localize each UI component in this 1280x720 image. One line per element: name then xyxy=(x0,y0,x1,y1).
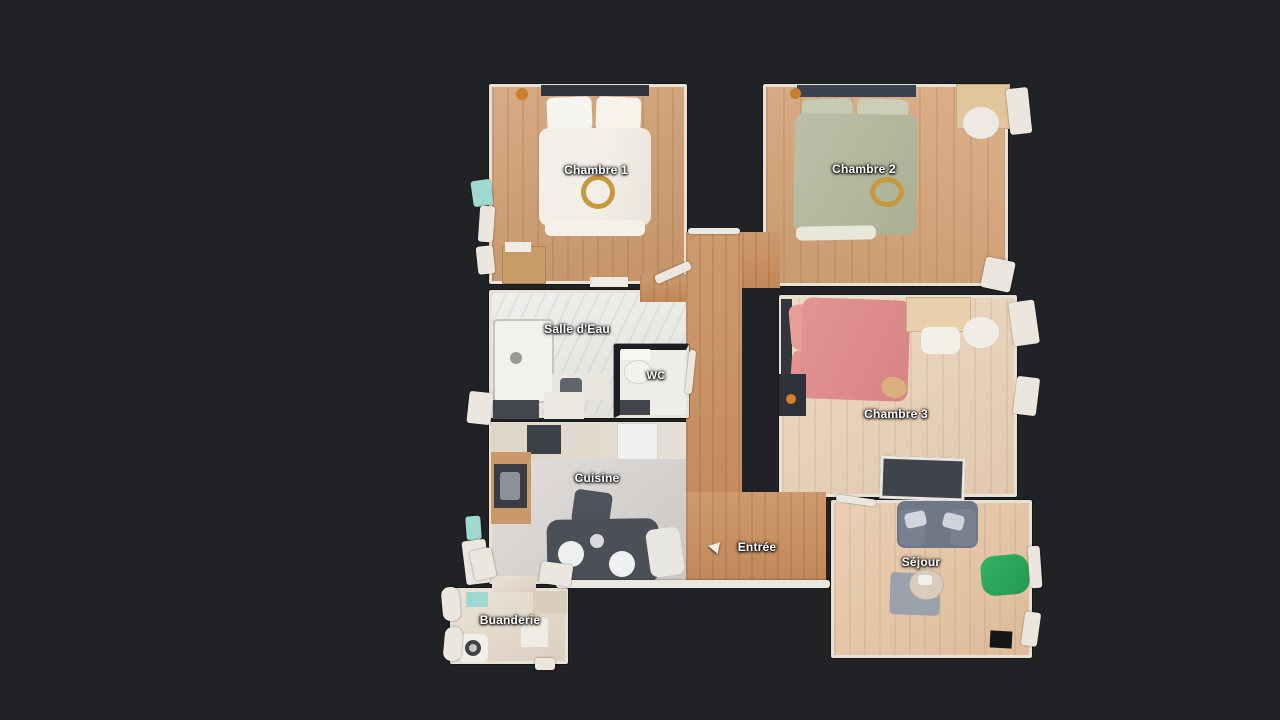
chambre3-bench xyxy=(879,456,965,502)
room-label-cuisine: Cuisine xyxy=(575,471,620,485)
kitchen-chair-white xyxy=(645,526,685,578)
room-entree-hall[interactable] xyxy=(686,492,826,586)
chambre3-candle xyxy=(786,394,796,404)
kitchen-bowl xyxy=(590,534,604,548)
wc-mat xyxy=(620,400,650,415)
bathroom-cabinet xyxy=(544,392,584,419)
wall-fragment xyxy=(478,206,495,243)
wall-fragment xyxy=(539,561,574,587)
bed1-foot-drape xyxy=(545,220,645,236)
wall-fragment xyxy=(476,245,496,275)
wall-fragment xyxy=(1008,299,1040,346)
room-label-entree: Entrée xyxy=(738,540,777,554)
wall-bottom-edge xyxy=(556,580,830,588)
wall-fragment xyxy=(441,586,462,621)
wall-fragment xyxy=(535,658,555,670)
bed2-valance xyxy=(796,225,876,240)
shower-drain xyxy=(510,352,522,364)
bed1-headboard xyxy=(541,85,649,96)
toilet-tank xyxy=(621,349,650,360)
wall-fragment xyxy=(470,179,493,208)
bed1-pillow xyxy=(546,96,592,132)
room-label-sejour: Séjour xyxy=(902,555,941,569)
wall-fragment xyxy=(466,391,493,425)
bed2-lamp xyxy=(790,88,801,99)
kitchen-sink-basin xyxy=(500,472,520,500)
room-label-buanderie: Buanderie xyxy=(480,613,540,627)
room-entree-connector[interactable] xyxy=(742,232,780,288)
wall-fragment xyxy=(1013,376,1040,417)
laundry-counter xyxy=(533,591,567,614)
wall-fragment xyxy=(1021,611,1042,647)
room-label-chambre-1: Chambre 1 xyxy=(564,163,628,177)
chambre3-crib xyxy=(921,327,960,354)
room-label-wc: WC xyxy=(647,370,666,382)
chambre1-radiator xyxy=(590,277,628,287)
wall-fragment xyxy=(443,626,464,661)
coffee-table-decor xyxy=(918,575,932,585)
laundry-shelf-teal xyxy=(466,592,488,607)
floorplan-canvas: Chambre 1 Chambre 2 Salle d'Eau WC Cuisi… xyxy=(0,0,1280,720)
wall-fragment xyxy=(980,256,1016,293)
wall-fragment xyxy=(1006,87,1033,135)
bed1-lamp xyxy=(516,88,528,100)
chambre2-chair xyxy=(963,107,999,139)
chambre3-chair xyxy=(963,317,999,348)
washing-machine-door xyxy=(465,640,481,656)
room-label-chambre-2: Chambre 2 xyxy=(832,162,896,176)
bed2-headboard xyxy=(797,85,916,97)
wall-top-edge xyxy=(688,228,740,234)
bed2-gold-decor xyxy=(870,177,904,207)
kitchen-fridge xyxy=(617,423,658,460)
tv-unit xyxy=(990,630,1013,648)
kitchen-plate xyxy=(609,551,635,577)
room-label-chambre-3: Chambre 3 xyxy=(864,407,928,421)
wall-fragment xyxy=(1028,546,1043,589)
bathroom-appliance xyxy=(493,400,539,419)
bed1-gold-wreath-decor xyxy=(581,175,615,209)
wall-fragment xyxy=(465,516,482,541)
bed1-pillow xyxy=(595,96,641,132)
room-label-salle-deau: Salle d'Eau xyxy=(544,322,610,336)
kitchen-stove xyxy=(527,425,561,454)
chambre1-nightstand-paper xyxy=(505,242,531,252)
doorway-buanderie[interactable] xyxy=(492,576,536,592)
green-pouf xyxy=(979,553,1030,597)
